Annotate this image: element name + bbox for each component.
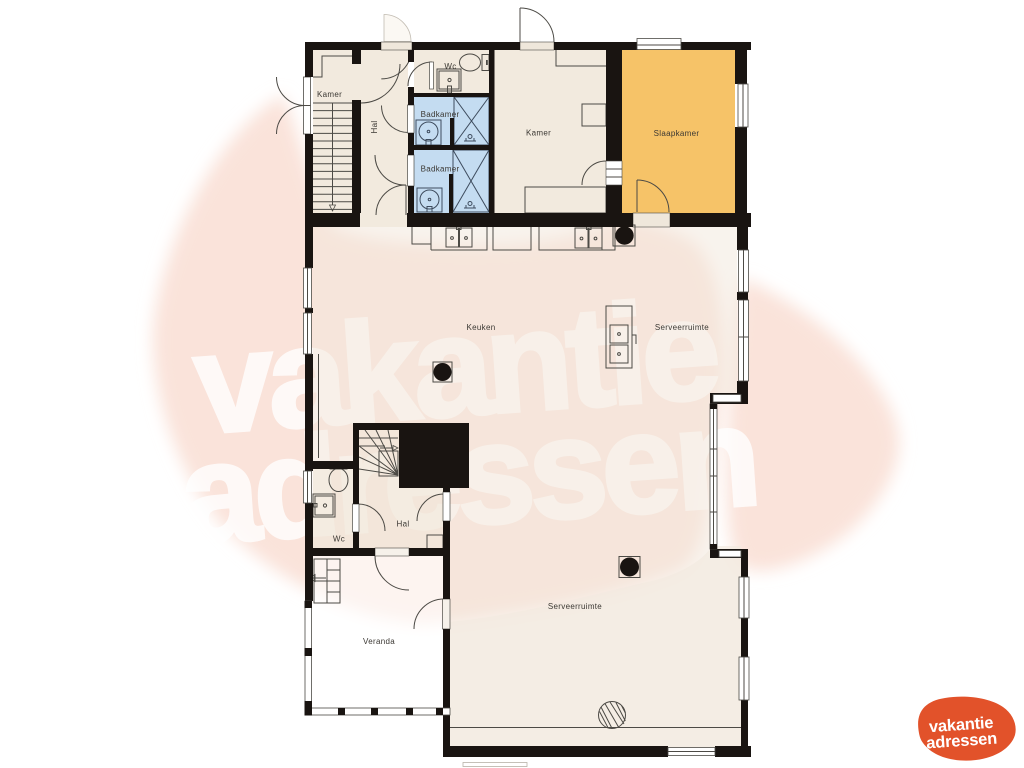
svg-text:Kamer: Kamer — [317, 90, 342, 99]
svg-text:Hal: Hal — [397, 520, 410, 529]
svg-text:Badkamer: Badkamer — [421, 165, 460, 174]
svg-text:Veranda: Veranda — [363, 637, 395, 646]
svg-text:Wc: Wc — [444, 62, 456, 71]
svg-text:Serveerruimte: Serveerruimte — [548, 602, 602, 611]
svg-text:Kamer: Kamer — [526, 129, 551, 138]
svg-text:Badkamer: Badkamer — [421, 110, 460, 119]
svg-text:Keuken: Keuken — [467, 323, 496, 332]
svg-text:Serveerruimte: Serveerruimte — [655, 323, 709, 332]
svg-text:Slaapkamer: Slaapkamer — [654, 129, 700, 138]
svg-text:Hal: Hal — [370, 121, 379, 134]
svg-text:Wc: Wc — [333, 535, 345, 544]
